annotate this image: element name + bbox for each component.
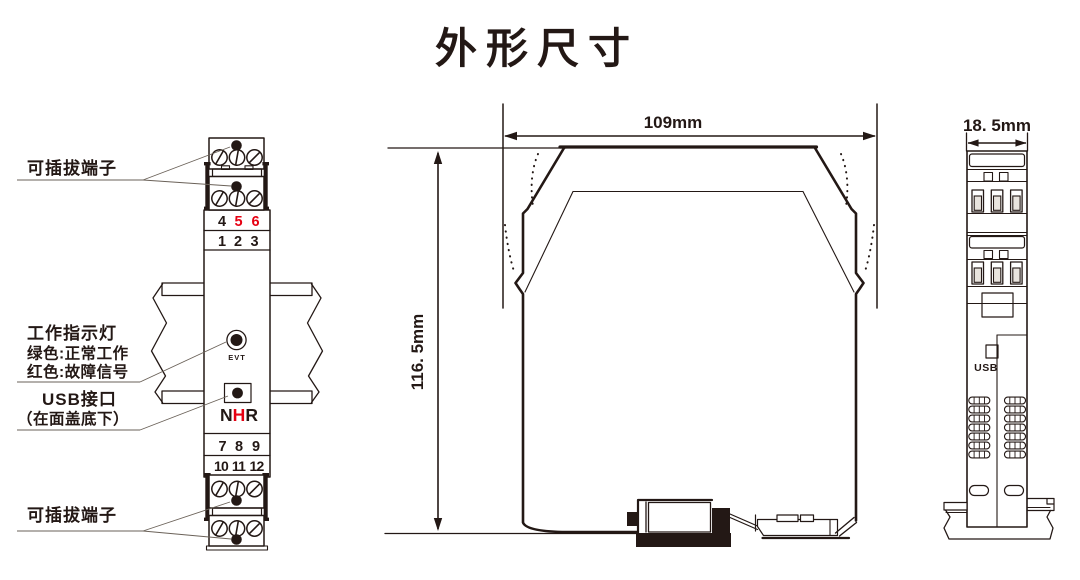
outline-dimensions-diagram: 外形尺寸 bbox=[0, 0, 1080, 580]
terminal-block-top bbox=[204, 138, 269, 210]
terminal-number-8: 8 bbox=[235, 439, 243, 455]
terminal-block-bottom bbox=[204, 473, 269, 550]
usb-text: USB bbox=[974, 362, 998, 374]
nhr-logo: NHR bbox=[220, 405, 258, 425]
terminal-dot bbox=[231, 534, 242, 545]
terminal-number-7: 7 bbox=[218, 439, 226, 455]
dimension-width-18-5: 18. 5mm bbox=[963, 116, 1031, 151]
diagram-canvas: 外形尺寸 bbox=[0, 0, 1080, 580]
terminal-number-4: 4 bbox=[218, 214, 226, 230]
module-end-outline bbox=[967, 151, 1027, 527]
indicator-label-2: 绿色:正常工作 bbox=[27, 344, 129, 363]
terminal-number-9: 9 bbox=[252, 439, 260, 455]
terminal-number-10: 10 bbox=[214, 458, 229, 474]
logo-letter-n: N bbox=[220, 405, 233, 425]
dimension-width-109: 109mm bbox=[503, 104, 877, 308]
clip-latch bbox=[730, 514, 857, 538]
callout-indicator: 工作指示灯 绿色:正常工作 红色:故障信号 bbox=[17, 323, 226, 382]
usb-dot-icon bbox=[232, 388, 243, 399]
width-dim-label: 109mm bbox=[644, 113, 703, 132]
indicator-label-1: 工作指示灯 bbox=[27, 323, 117, 343]
callout-plug-bottom: 可插拔端子 bbox=[17, 502, 231, 539]
usb-label-1: USB接口 bbox=[42, 389, 117, 409]
terminal-number-11: 11 bbox=[232, 458, 246, 474]
plug-bottom-label: 可插拔端子 bbox=[27, 505, 117, 525]
terminal-number-2: 2 bbox=[234, 234, 242, 250]
end-view: 18. 5mm bbox=[944, 116, 1054, 539]
terminal-number-5: 5 bbox=[234, 214, 242, 230]
dimension-height-116-5: 116. 5mm bbox=[408, 151, 442, 531]
terminal-number-6: 6 bbox=[251, 214, 259, 230]
led-dot-icon bbox=[231, 334, 243, 346]
callout-usb: USB接口 （在面盖底下） bbox=[17, 389, 228, 430]
height-dim-label: 116. 5mm bbox=[408, 314, 427, 391]
usb-label-2: （在面盖底下） bbox=[17, 409, 129, 428]
front-view: 4 5 6 1 2 3 EVT NHR 7 8 9 10 11 12 bbox=[17, 138, 323, 550]
callout-plug-top: 可插拔端子 bbox=[17, 147, 231, 186]
terminal-number-1: 1 bbox=[218, 234, 226, 250]
terminal-number-3: 3 bbox=[250, 234, 258, 250]
led-label: EVT bbox=[228, 353, 246, 362]
terminal-dot bbox=[231, 495, 242, 506]
module-side-outline bbox=[505, 147, 874, 532]
clip-travel-dots bbox=[505, 225, 515, 273]
page-title: 外形尺寸 bbox=[435, 25, 639, 72]
logo-letter-h: H bbox=[233, 405, 246, 425]
side-view: 109mm 116. 5mm bbox=[385, 104, 877, 547]
plug-top-label: 可插拔端子 bbox=[27, 158, 117, 178]
indicator-label-3: 红色:故障信号 bbox=[27, 362, 129, 381]
clip-travel-dots bbox=[865, 225, 875, 273]
terminal-number-12: 12 bbox=[250, 458, 265, 474]
end-width-dim-label: 18. 5mm bbox=[963, 116, 1031, 135]
din-clip bbox=[627, 500, 731, 547]
logo-letter-r: R bbox=[245, 405, 258, 425]
